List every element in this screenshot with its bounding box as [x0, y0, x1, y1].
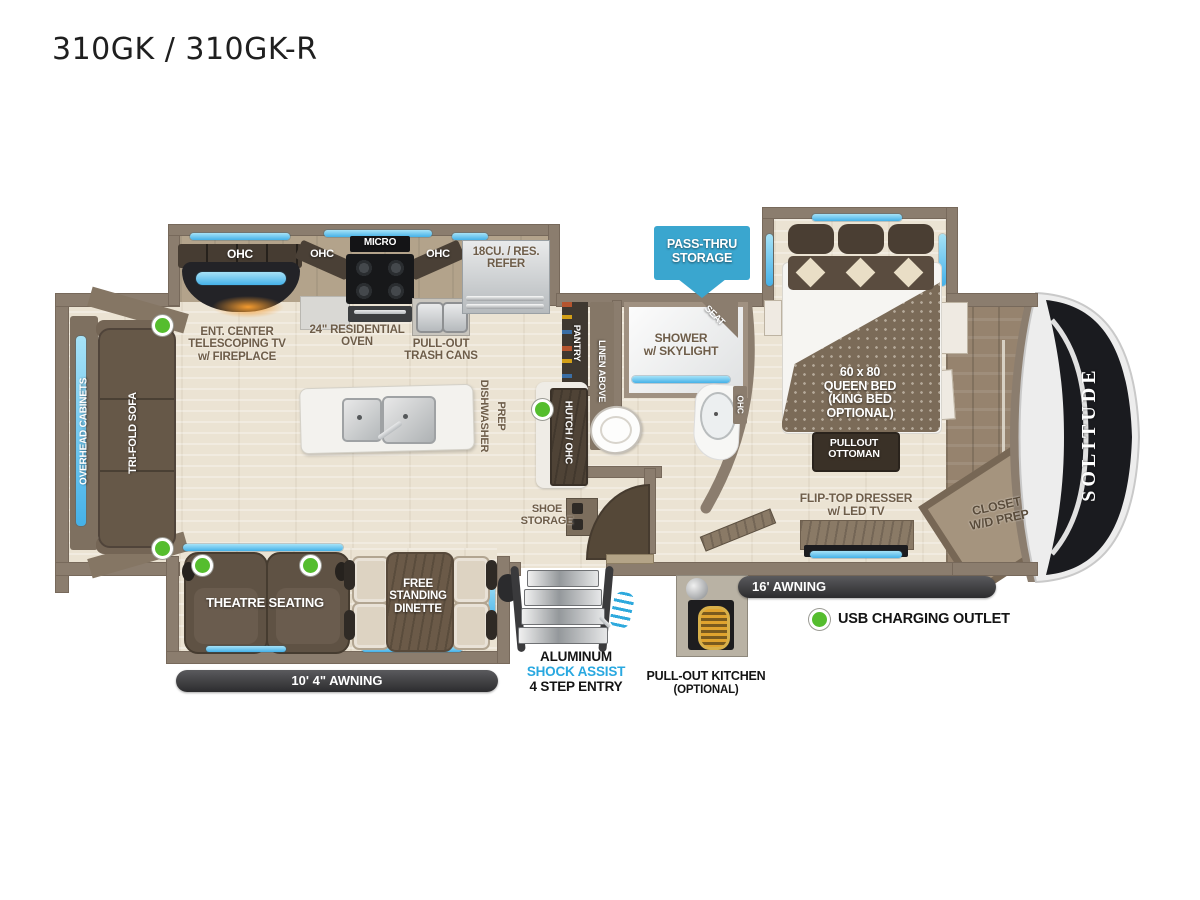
dishwasher-prep-label2: PREP	[494, 370, 506, 462]
pass-thru-arrow	[678, 279, 726, 298]
sink-drain	[357, 415, 362, 420]
ent-center-label: ENT. CENTER TELESCOPING TV w/ FIREPLACE	[180, 326, 294, 363]
floorplan-page: 310GK / 310GK-R SOLITUDE	[0, 0, 1200, 900]
bed-pillow	[788, 224, 834, 254]
grill-grate	[698, 606, 730, 650]
dishwasher-prep-label: DISHWASHER	[477, 370, 489, 462]
wall	[606, 562, 958, 576]
flip-top-dresser-label: FLIP-TOP DRESSER w/ LED TV	[796, 492, 916, 518]
usb-outlet-dot	[152, 538, 173, 559]
dinette-chair	[452, 602, 490, 650]
pass-thru-label: PASS-THRU STORAGE	[654, 238, 750, 265]
tri-fold-sofa-label: TRI-FOLD SOFA	[128, 373, 140, 493]
shower-label: SHOWER w/ SKYLIGHT	[624, 332, 738, 358]
shower-glass	[632, 376, 730, 383]
dinette-chair	[452, 556, 490, 604]
queen-bed-label: 60 x 80 QUEEN BED (KING BED OPTIONAL)	[792, 366, 928, 420]
usb-legend-dot	[809, 609, 830, 630]
entry-step	[521, 608, 605, 625]
slide-accent	[183, 544, 343, 551]
window	[766, 234, 773, 286]
burner-dome	[686, 578, 708, 600]
bath-sink-basin	[700, 392, 736, 440]
right-awning-bar: 16' AWNING	[738, 576, 996, 598]
oven-door	[348, 306, 412, 322]
pullout-kitchen-label: PULL-OUT KITCHEN	[640, 670, 772, 684]
refrigerator-handle	[466, 304, 544, 309]
chair-arm	[344, 610, 355, 640]
headboard-accent	[812, 214, 902, 221]
bed-pillow	[888, 224, 934, 254]
entry-step	[527, 570, 599, 587]
trash-can	[416, 302, 444, 333]
pantry-label: PANTRY	[571, 307, 581, 379]
slide-accent	[206, 646, 286, 652]
overhead-cabinets-label: OVERHEAD CABINETS	[80, 356, 91, 506]
sink-drain	[403, 414, 408, 419]
dresser-led-strip	[810, 551, 902, 558]
brand-logo: SOLITUDE	[1079, 372, 1101, 502]
chair-arm	[486, 610, 497, 640]
wall	[952, 562, 1038, 576]
theatre-seating-label: THEATRE SEATING	[186, 596, 344, 610]
page-title: 310GK / 310GK-R	[52, 34, 318, 66]
refer-label: 18CU. / RES. REFER	[462, 246, 550, 271]
toilet-seat	[600, 416, 632, 444]
usb-outlet-dot	[192, 555, 213, 576]
ohc-mid-label: OHC	[300, 249, 344, 261]
entry-step	[524, 589, 602, 606]
usb-legend-label: USB CHARGING OUTLET	[838, 612, 1038, 628]
chair-arm	[344, 560, 355, 590]
micro-label: MICRO	[352, 238, 408, 249]
stair-ledge	[606, 554, 654, 564]
wall	[55, 293, 69, 593]
window	[452, 233, 488, 240]
trash-label: PULL-OUT TRASH CANS	[402, 338, 480, 363]
ohc-left-label: OHC	[200, 248, 280, 261]
shock-assist-coil	[608, 590, 635, 629]
sink-basin	[342, 398, 382, 442]
entry-step	[518, 627, 608, 644]
fireplace-glow	[212, 296, 284, 318]
wall	[166, 556, 179, 664]
bath-ohc-label: OHC	[735, 390, 744, 420]
window	[190, 233, 290, 240]
sink-basin	[382, 396, 436, 444]
chair-arm	[486, 560, 497, 590]
entry-label-line1: ALUMINUM	[512, 650, 640, 665]
nightstand	[764, 300, 782, 336]
hutch-label: HUTCH / OHC	[562, 389, 573, 475]
refrigerator-handle	[466, 296, 544, 301]
usb-outlet-dot	[532, 399, 553, 420]
left-awning-label: 10' 4" AWNING	[291, 673, 382, 688]
usb-outlet-dot	[300, 555, 321, 576]
entry-label-line2: SHOCK ASSIST	[512, 665, 640, 680]
usb-outlet-dot	[152, 315, 173, 336]
oven-label: 24" RESIDENTIAL OVEN	[302, 324, 412, 349]
pullout-ottoman-label: PULLOUT OTTOMAN	[812, 438, 896, 461]
bed-pillow	[838, 224, 884, 254]
tv-screen	[196, 272, 286, 285]
cooktop	[346, 254, 414, 304]
ohc-right-label: OHC	[416, 249, 460, 261]
dinette-label: FREE STANDING DINETTE	[384, 578, 452, 615]
entry-label-line3: 4 STEP ENTRY	[512, 680, 640, 695]
wall	[497, 556, 510, 664]
bath-sink-drain	[714, 412, 718, 416]
wall	[946, 207, 958, 307]
shoe-storage-label: SHOE STORAGE	[512, 504, 582, 528]
left-awning-bar: 10' 4" AWNING	[176, 670, 498, 692]
pullout-kitchen-optional: (OPTIONAL)	[640, 684, 772, 696]
oven-handle	[354, 310, 406, 314]
right-awning-label: 16' AWNING	[752, 579, 826, 594]
front-cap	[940, 283, 1150, 593]
nightstand	[940, 302, 968, 354]
